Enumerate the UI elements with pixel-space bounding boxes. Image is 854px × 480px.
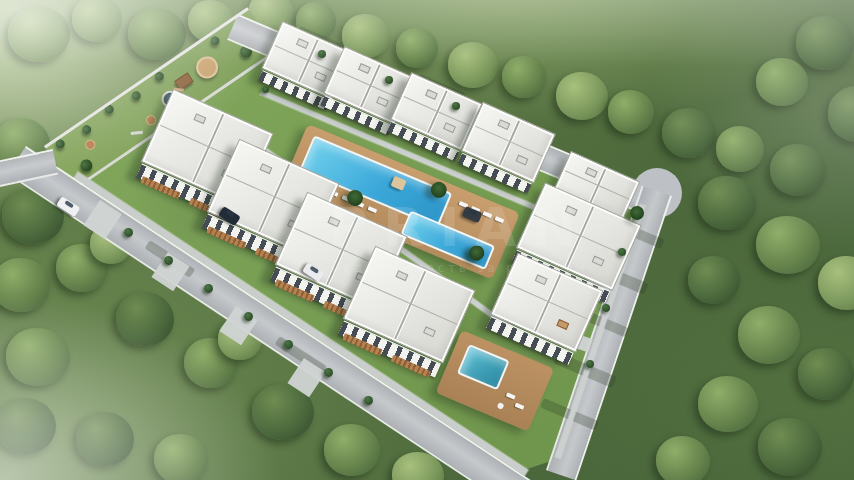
shrub-icon xyxy=(262,86,269,93)
tree-icon xyxy=(154,434,208,480)
tree-icon xyxy=(698,376,758,432)
tree-icon xyxy=(8,6,70,62)
tree-icon xyxy=(656,436,710,480)
palm-tree-icon xyxy=(630,206,644,220)
tree-icon xyxy=(758,418,822,476)
tree-icon xyxy=(448,42,498,88)
tree-icon xyxy=(0,258,50,312)
tree-icon xyxy=(770,144,826,196)
hedge-icon xyxy=(164,256,173,265)
sun-lounger xyxy=(367,206,377,213)
tree-icon xyxy=(716,126,764,172)
sun-lounger xyxy=(506,392,516,399)
tree-icon xyxy=(556,72,608,120)
seesaw xyxy=(131,131,143,135)
hedge-icon xyxy=(586,360,594,368)
flower-bed xyxy=(83,138,97,152)
tree-icon xyxy=(688,256,740,304)
shrub-icon xyxy=(318,50,326,58)
aerial-render-scene: PRIAN недвижимость за рубежом xyxy=(0,0,854,480)
palm-tree-icon xyxy=(470,246,484,260)
tree-icon xyxy=(324,424,380,476)
tree-icon xyxy=(756,216,820,274)
sun-lounger xyxy=(515,403,525,410)
tree-icon xyxy=(738,306,800,364)
sand-circle xyxy=(192,52,223,83)
tree-icon xyxy=(818,256,854,310)
tree-icon xyxy=(72,0,122,42)
tree-icon xyxy=(396,28,438,68)
hedge-icon xyxy=(124,228,133,237)
hedge-icon xyxy=(602,304,610,312)
tree-icon xyxy=(502,56,546,98)
cypress-tree-icon xyxy=(80,123,93,136)
cypress-tree-icon xyxy=(209,35,222,48)
tree-icon xyxy=(6,328,70,386)
bush-icon xyxy=(78,157,95,174)
shrub-icon xyxy=(452,102,460,110)
tree-icon xyxy=(76,412,134,466)
tree-icon xyxy=(608,90,654,134)
hedge-icon xyxy=(618,248,626,256)
hedge-icon xyxy=(204,284,213,293)
tree-icon xyxy=(828,86,854,142)
private-pool xyxy=(457,344,510,391)
shrub-icon xyxy=(385,76,393,84)
tree-icon xyxy=(756,58,808,106)
sun-lounger xyxy=(482,211,492,218)
hedge-icon xyxy=(244,312,253,321)
hedge-icon xyxy=(284,340,293,349)
patio-table xyxy=(497,402,505,410)
tree-icon xyxy=(128,8,186,60)
tree-icon xyxy=(662,108,716,158)
tree-icon xyxy=(698,176,756,230)
cypress-tree-icon xyxy=(130,90,143,103)
tree-icon xyxy=(0,398,56,454)
tree-icon xyxy=(116,292,174,346)
hedge-icon xyxy=(324,368,333,377)
sun-lounger xyxy=(494,216,504,223)
tree-icon xyxy=(796,16,854,70)
hedge-icon xyxy=(364,396,373,405)
tree-icon xyxy=(798,348,854,400)
